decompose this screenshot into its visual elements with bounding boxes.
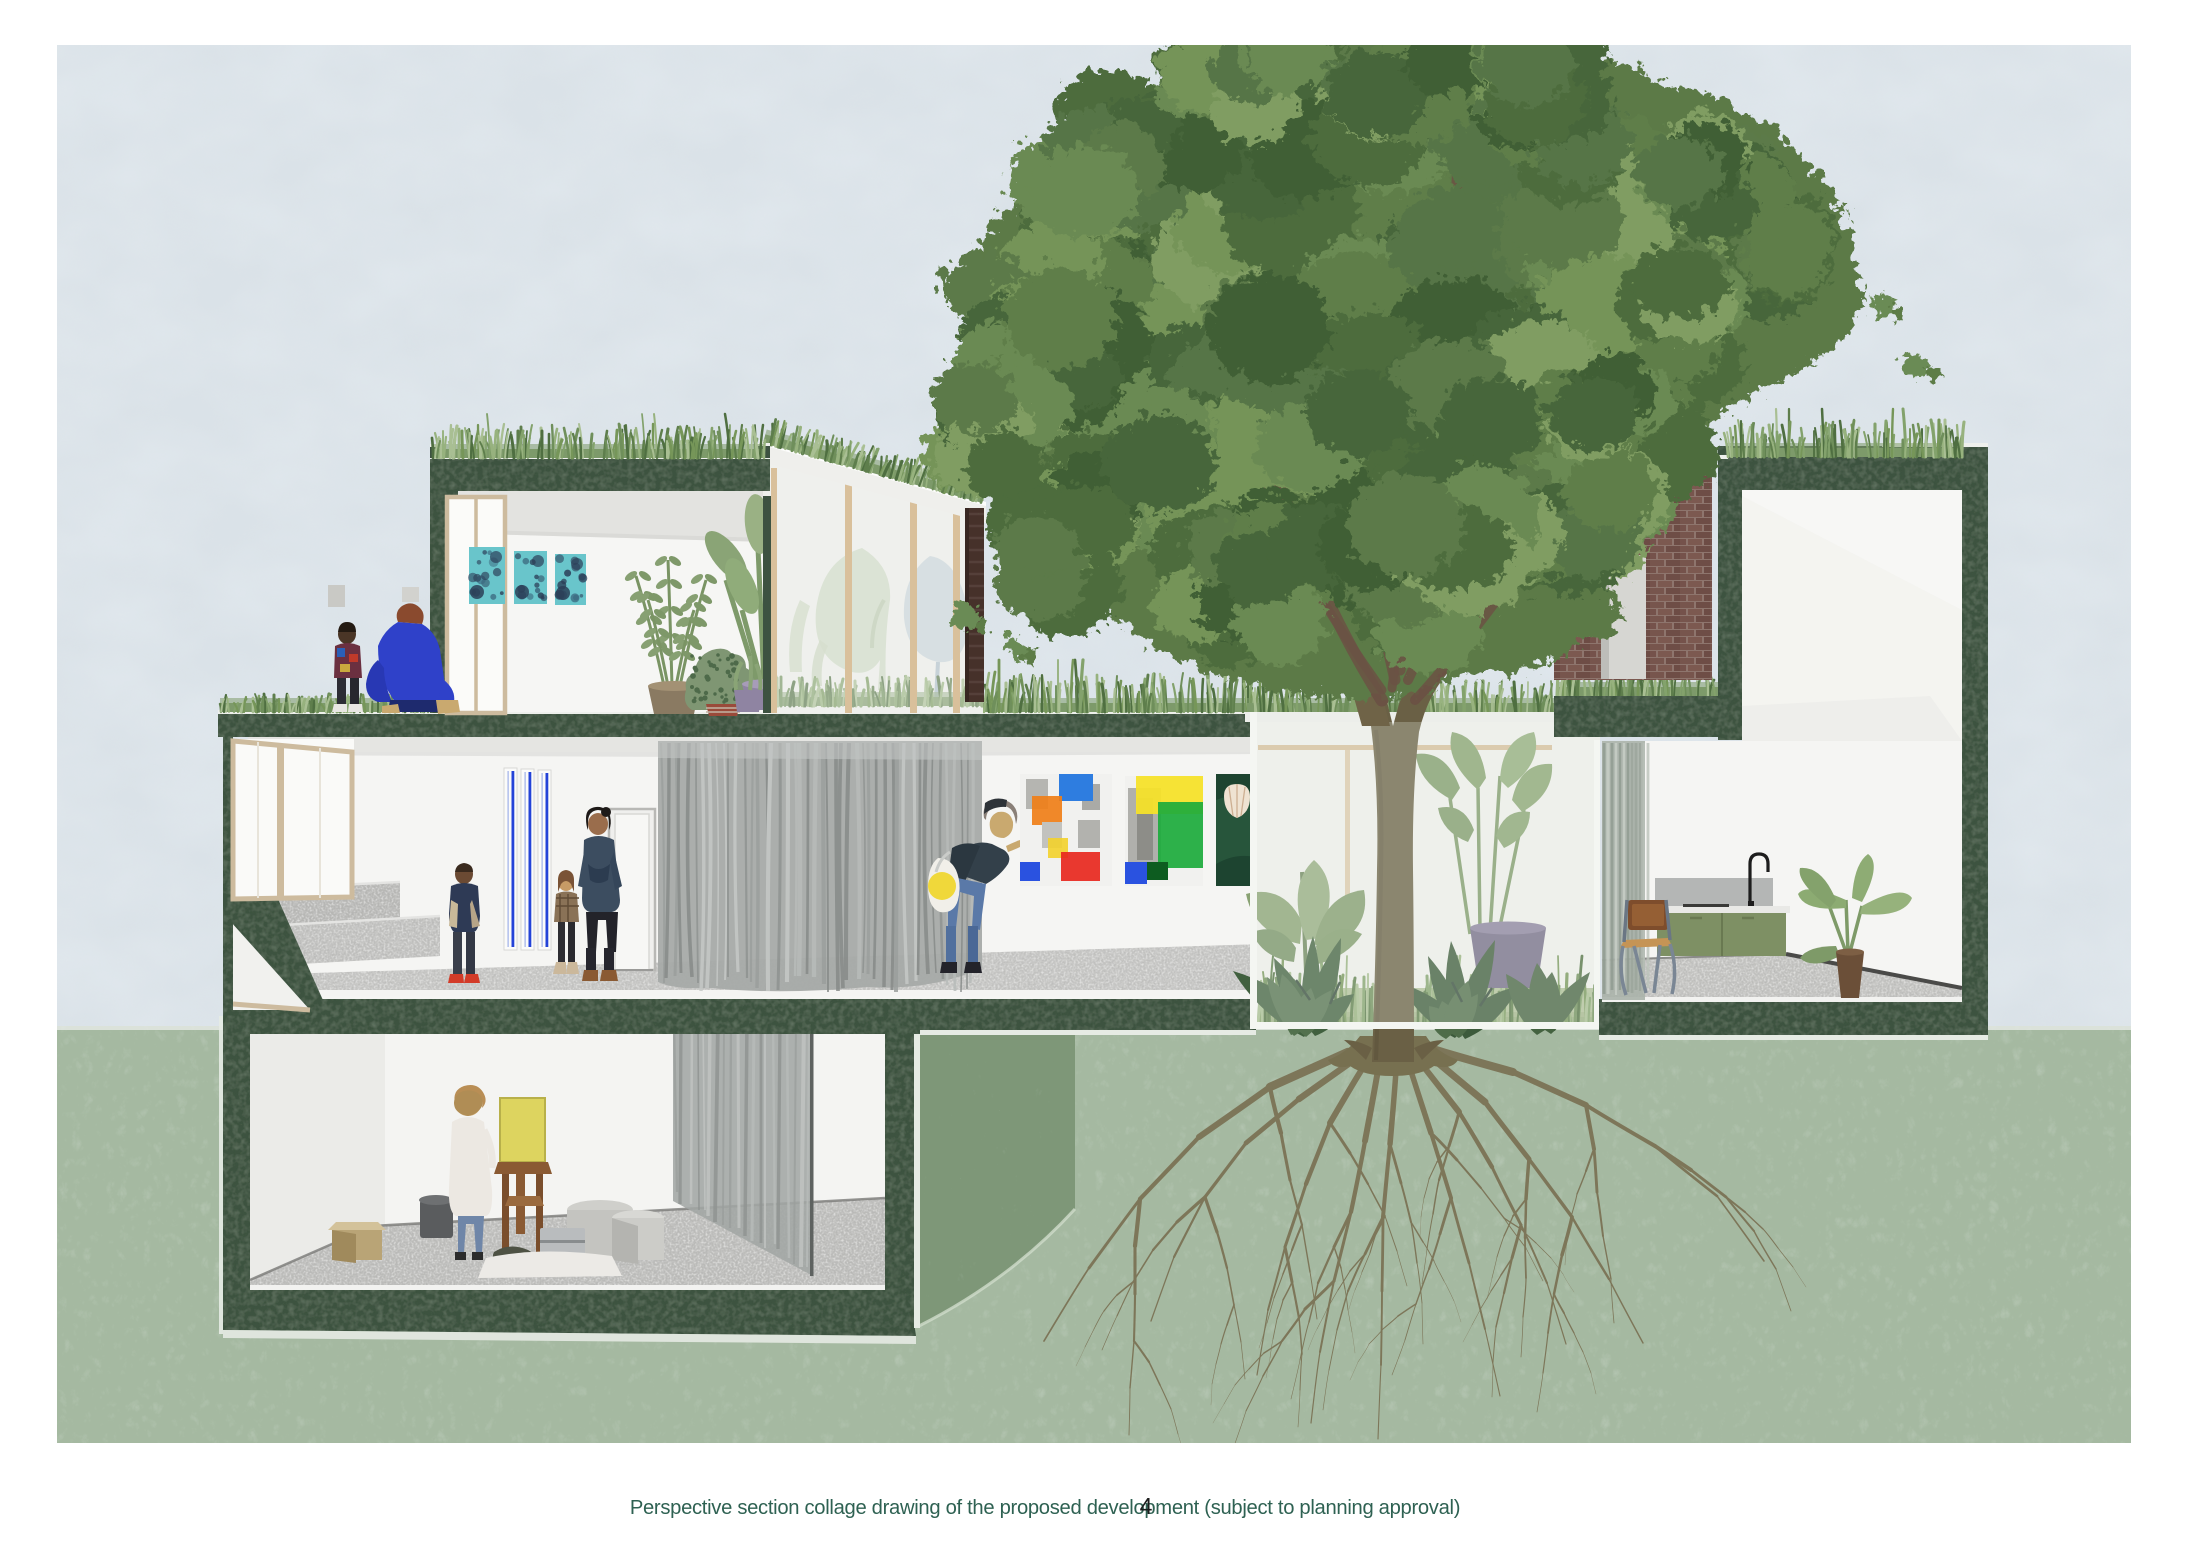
svg-text:4: 4 xyxy=(1140,1493,1153,1519)
svg-text:Perspective section collage dr: Perspective section collage drawing of t… xyxy=(630,1497,1460,1519)
